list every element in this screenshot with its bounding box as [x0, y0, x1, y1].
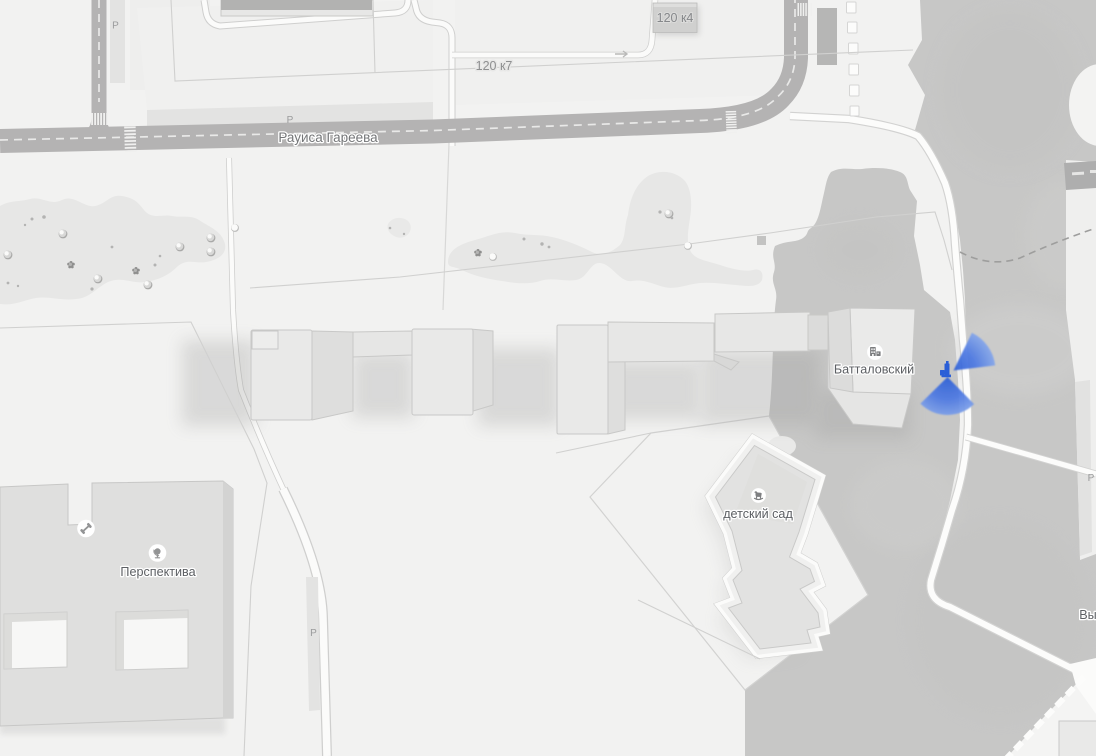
- svg-text:Перспектива: Перспектива: [120, 565, 195, 579]
- svg-text:Вы: Вы: [1079, 608, 1096, 622]
- svg-text:120 к7: 120 к7: [476, 59, 513, 73]
- svg-text:Р: Р: [310, 628, 317, 639]
- svg-text:детский сад: детский сад: [723, 507, 793, 521]
- svg-text:Р: Р: [112, 21, 119, 32]
- svg-text:Р: Р: [287, 115, 294, 126]
- svg-text:Рауиса Гареева: Рауиса Гареева: [278, 130, 378, 145]
- svg-text:Р: Р: [1088, 473, 1095, 484]
- svg-text:120 к4: 120 к4: [657, 11, 694, 25]
- svg-text:Батталовский: Батталовский: [834, 363, 914, 377]
